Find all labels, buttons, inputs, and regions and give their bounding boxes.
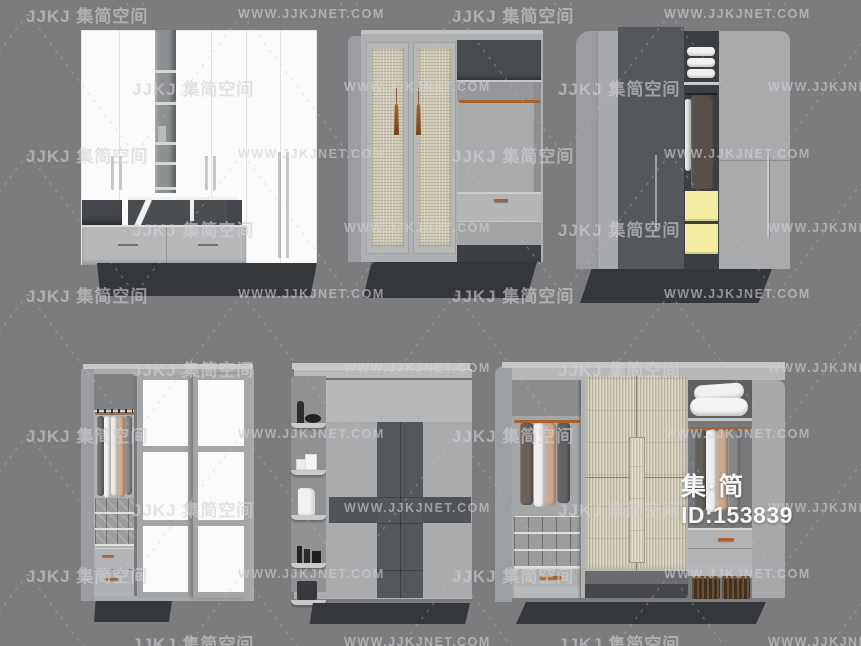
tassel-cord <box>418 88 419 102</box>
shelf <box>291 470 326 475</box>
side-gable <box>495 366 512 602</box>
open-compartment <box>82 200 122 225</box>
towel <box>687 47 715 56</box>
hanging-shirt-white <box>111 416 118 496</box>
glass-panel <box>143 452 188 520</box>
glass-panel <box>198 452 244 520</box>
shelf <box>291 563 326 568</box>
interior-top-shadow <box>512 380 585 416</box>
plinth <box>516 602 766 624</box>
drawer-handle <box>198 244 218 246</box>
drawer-handle <box>104 578 118 580</box>
yellow-drawer <box>685 224 718 254</box>
dark-accent-band <box>329 497 377 523</box>
cabinet-floor <box>688 564 752 576</box>
hanging-shirt-pink <box>118 416 125 497</box>
storage-basket <box>692 576 720 599</box>
watermark-brand-text: JJKJ 集简空间 <box>132 636 254 646</box>
watermark-brand-text: JJKJ 集简空间 <box>452 8 574 25</box>
wardrobe-rattan-tassel <box>347 30 545 302</box>
hanging-shirt-gray <box>97 416 104 496</box>
drawer <box>95 569 136 591</box>
plinth <box>94 601 172 622</box>
drawer-seam <box>688 548 752 549</box>
towel-stack <box>687 47 715 81</box>
sliding-door <box>193 374 249 598</box>
door-handle <box>213 156 215 190</box>
hanging-coat <box>691 95 715 189</box>
shelf <box>291 423 326 428</box>
open-section-left <box>512 380 585 598</box>
door-handle <box>111 156 113 190</box>
door-handle <box>655 155 657 231</box>
niche-divider-diagonal <box>134 198 152 228</box>
hanging-shirt-dark <box>125 416 132 495</box>
glass-panel <box>143 526 188 592</box>
side-gable <box>81 369 94 601</box>
shelf <box>155 70 176 73</box>
dark-door <box>618 27 684 269</box>
drawer <box>95 548 136 570</box>
pillow <box>690 398 748 416</box>
shelf <box>155 142 176 145</box>
tassel <box>416 88 421 135</box>
open-compartment <box>227 200 242 225</box>
cabinet-floor <box>514 586 580 598</box>
door-seam <box>377 570 423 571</box>
interior-shadow-band <box>457 82 541 102</box>
watermark-site-text: WWW.JJKJNET.COM <box>238 8 385 21</box>
door-handle <box>286 152 288 258</box>
decor-bottle <box>312 551 321 563</box>
watermark-brand-text: JJKJ 集简空间 <box>26 8 148 25</box>
storage-basket <box>722 576 750 599</box>
decor-bowl <box>305 414 321 423</box>
dark-door-strip <box>377 422 423 598</box>
tassel-body <box>416 102 421 135</box>
hanging-shirt-white <box>104 416 111 498</box>
wardrobe-dark-door <box>576 27 792 305</box>
interior-top-shadow <box>94 374 137 412</box>
shelf <box>155 102 176 105</box>
rattan-panel <box>418 48 451 246</box>
shelf <box>155 187 176 190</box>
door-handle <box>119 156 121 190</box>
drawer <box>457 221 541 246</box>
cubby-shelves <box>514 516 580 568</box>
interior-side-shadow <box>134 374 137 596</box>
hanging-robe-brown <box>520 423 533 505</box>
plinth <box>580 269 772 303</box>
wardrobe-sliding-glass <box>80 362 256 624</box>
door-handle <box>767 157 769 237</box>
towel <box>687 69 715 78</box>
shelf-decor-item <box>158 126 166 142</box>
open-section <box>684 31 719 269</box>
rattan-center-strip <box>629 437 645 563</box>
drawer-seam <box>166 227 167 265</box>
decor-bottle <box>304 549 310 563</box>
drawer-handle <box>118 244 138 246</box>
hanging-robe-tan <box>545 423 556 505</box>
side-gable <box>348 36 361 262</box>
display-shelf-column <box>291 376 326 592</box>
door-handle <box>278 152 280 258</box>
drawer-handle <box>102 555 114 557</box>
decor-bag <box>298 488 315 515</box>
open-shelf-column <box>155 30 176 193</box>
hanging-rod <box>459 100 540 103</box>
door-seam <box>280 30 281 263</box>
hanging-robe-white <box>534 423 545 507</box>
door-seam <box>246 30 247 263</box>
drawer <box>514 568 580 587</box>
cabinet-curved-shelves <box>286 362 474 624</box>
overlay-id-text: ID:153839 <box>681 503 793 527</box>
yellow-drawer <box>685 191 718 221</box>
door-seam <box>377 523 423 524</box>
drawer-handle <box>718 538 734 541</box>
drawer-handle <box>540 576 562 579</box>
rattan-panel <box>371 48 404 246</box>
rattan-sliding-doors <box>585 373 688 571</box>
drawer-handle <box>494 199 508 202</box>
wardrobe-showcase-image: JJKJ 集简空间WWW.JJKJNET.COMJJKJ 集简空间WWW.JJK… <box>0 0 861 646</box>
plinth <box>308 603 470 624</box>
watermark-brand-text: JJKJ 集简空间 <box>558 636 680 646</box>
door-seam <box>377 497 423 498</box>
decor-box <box>305 454 317 470</box>
watermark-site-text: WWW.JJKJNET.COM <box>344 636 491 646</box>
top-cubby <box>457 40 541 82</box>
bottom-cavity <box>457 245 541 262</box>
open-section <box>94 374 137 596</box>
wine-rack-shelves <box>95 498 136 546</box>
decor-bottle <box>297 546 302 563</box>
plinth <box>363 262 537 298</box>
decor-box-dark <box>297 581 317 600</box>
tassel <box>394 88 399 135</box>
rattan-door <box>413 42 456 254</box>
shelf <box>684 82 719 85</box>
wood-door <box>719 31 790 269</box>
interior-floor-shadow <box>585 571 688 598</box>
glass-panel <box>198 526 244 592</box>
shelf <box>291 515 326 520</box>
shelf <box>688 418 752 421</box>
model-id-overlay: 集·简 ID:153839 <box>681 474 793 527</box>
dark-accent-band <box>423 497 471 523</box>
sliding-door <box>138 374 193 598</box>
drawer-unit <box>688 528 752 566</box>
drawer <box>457 192 541 223</box>
glass-panel <box>143 380 188 446</box>
towel <box>687 58 715 67</box>
wardrobe-white-tv-unit <box>80 28 320 302</box>
door-handle <box>205 156 207 190</box>
side-gable <box>576 31 597 269</box>
hanger-hooks <box>97 409 133 413</box>
wood-door <box>597 31 619 269</box>
hanging-robe-charcoal <box>557 423 570 503</box>
niche-divider <box>190 200 194 221</box>
drawer-unit <box>82 225 246 265</box>
glass-panel <box>198 380 244 446</box>
rattan-door <box>366 42 409 254</box>
door-seam <box>719 160 790 161</box>
tassel-body <box>394 102 399 135</box>
overlay-brand-text: 集·简 <box>681 474 793 500</box>
shelf <box>155 162 176 165</box>
watermark-site-text: WWW.JJKJNET.COM <box>664 8 811 21</box>
door-seam <box>400 422 401 598</box>
watermark-site-text: WWW.JJKJNET.COM <box>768 636 861 646</box>
decor-vase <box>297 401 304 423</box>
tassel-cord <box>396 88 397 102</box>
plinth <box>97 263 317 296</box>
